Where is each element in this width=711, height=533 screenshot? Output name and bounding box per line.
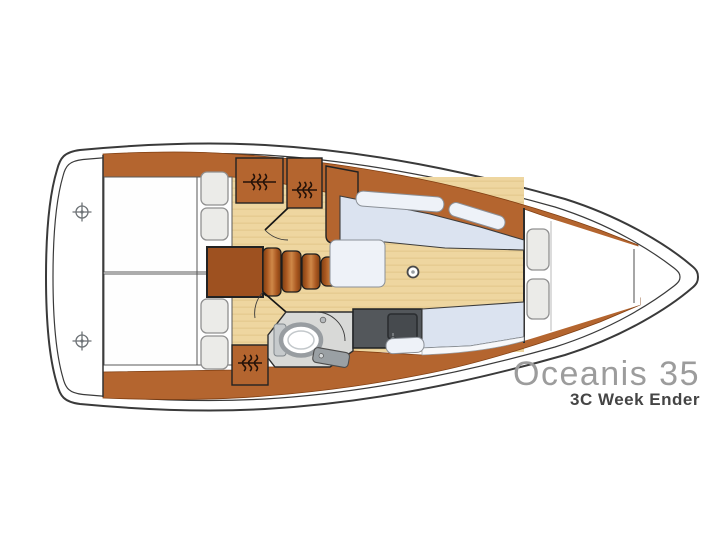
engine-box — [207, 247, 263, 297]
companionway-step — [302, 254, 320, 289]
pillow — [527, 279, 549, 319]
yacht-layout-plan: Oceanis 35 3C Week Ender — [0, 0, 711, 533]
pillow — [201, 208, 228, 240]
mast-post-icon — [408, 267, 419, 278]
shower-mixer-icon — [320, 317, 326, 323]
companionway-step — [282, 251, 301, 292]
layout-version-label: 3C Week Ender — [570, 390, 700, 409]
hanging-locker — [236, 158, 283, 203]
pillow — [201, 336, 228, 369]
settee-end-cushion — [386, 337, 425, 354]
pillow — [201, 172, 228, 205]
port-settee-arm — [330, 240, 385, 287]
model-name-label: Oceanis 35 — [513, 355, 700, 393]
pillow — [527, 229, 549, 270]
boat-floorplan-canvas: Oceanis 35 3C Week Ender — [0, 0, 711, 533]
pillow — [201, 299, 228, 333]
companionway-step — [263, 248, 281, 296]
